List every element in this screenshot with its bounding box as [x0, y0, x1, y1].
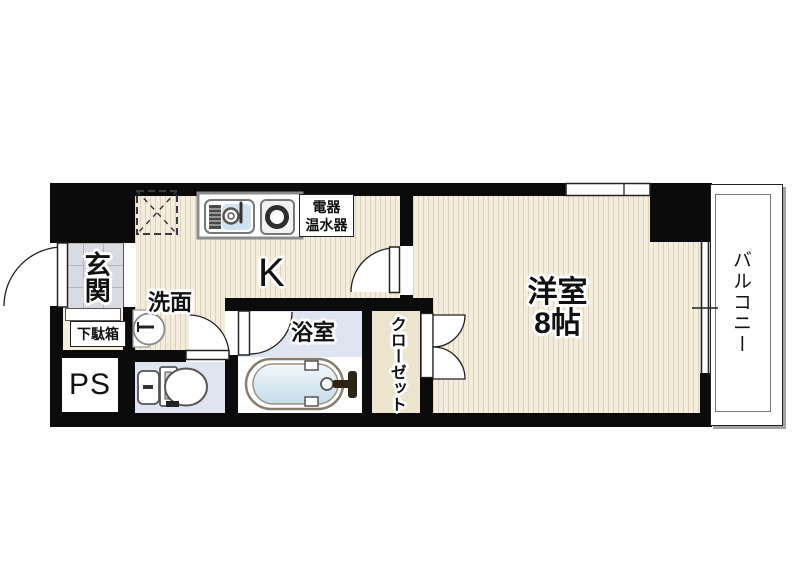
floor-plan: PS — [0, 0, 800, 587]
fridge-space — [137, 191, 177, 234]
wash-basin — [133, 310, 165, 347]
window — [566, 184, 650, 196]
tub-drain — [321, 378, 333, 390]
bathtub — [246, 359, 357, 409]
kitchen-label: K — [258, 252, 285, 294]
western-room-name: 洋室 — [470, 277, 645, 308]
sink-drain — [224, 209, 239, 224]
closet-label: クローゼット — [387, 316, 404, 412]
balcony-sliding-door — [692, 242, 718, 373]
entrance-label: 玄関 — [82, 251, 109, 303]
bathroom-door — [239, 311, 293, 355]
toilet-door — [186, 315, 229, 360]
water-heater-label: 電器 温水器 — [299, 194, 354, 237]
fixtures-layer — [0, 0, 800, 587]
front-door — [4, 243, 68, 307]
toilet — [138, 367, 207, 407]
closet-doors — [421, 314, 465, 380]
western-room-label: 洋室 8帖 — [470, 277, 645, 339]
kitchen-counter — [198, 193, 302, 238]
kitchen-room-door — [351, 246, 413, 295]
burner-ring — [268, 208, 287, 227]
western-room-size: 8帖 — [470, 308, 645, 339]
shoe-box-label: 下駄箱 — [70, 321, 126, 347]
balcony-label: バルコニー — [730, 250, 750, 355]
washroom-label: 洗面 — [148, 291, 192, 314]
bathroom-label: 浴室 — [291, 321, 335, 344]
